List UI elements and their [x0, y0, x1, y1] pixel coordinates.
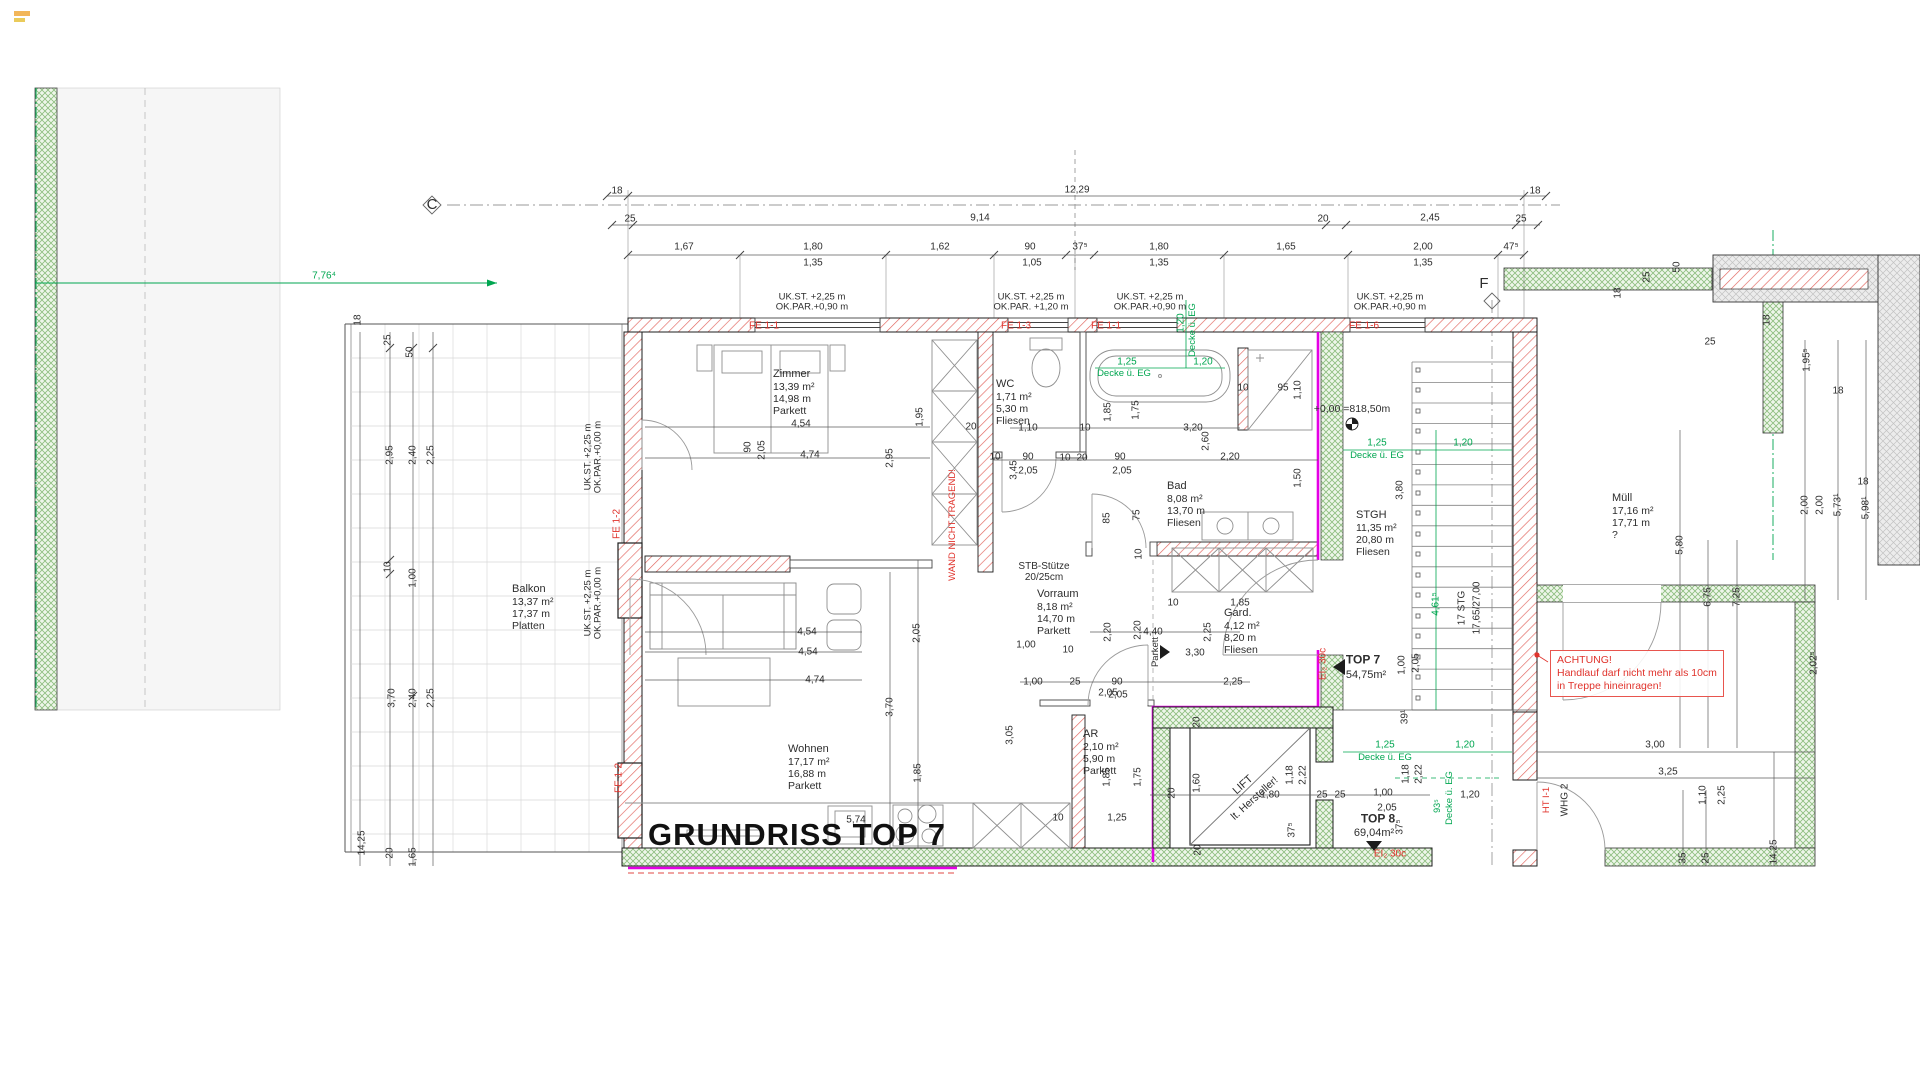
plan-drawing — [0, 0, 1920, 1080]
window-fe1-3 — [1008, 318, 1068, 332]
achtung-line: ACHTUNG! — [1557, 654, 1717, 667]
window-fe1-6 — [1350, 318, 1425, 332]
door-wc — [1002, 458, 1056, 512]
door-entry-top7 — [1223, 560, 1318, 655]
existing-building-left — [35, 88, 280, 710]
achtung-line: Handlauf darf nicht mehr als 10cm — [1557, 667, 1717, 680]
achtung-note: ACHTUNG! Handlauf darf nicht mehr als 10… — [1550, 650, 1724, 697]
shower — [1248, 350, 1312, 430]
door-ar — [1088, 645, 1148, 705]
sofa — [650, 583, 796, 649]
achtung-line: in Treppe hineinragen! — [1557, 680, 1717, 693]
chairs — [827, 584, 861, 650]
door-zimmer-balcony — [642, 420, 692, 470]
wardrobe-zimmer — [932, 340, 977, 545]
party-wall — [1321, 268, 1815, 866]
wall-nicht-tragend — [978, 332, 993, 572]
window-fe1-1-b — [1097, 318, 1177, 332]
bathtub — [1090, 350, 1230, 402]
door-bad — [1092, 494, 1146, 548]
window-fe1-1-a — [755, 318, 880, 332]
toilet — [1030, 338, 1062, 387]
door-ht — [1537, 782, 1605, 850]
window-fe1-2-b — [618, 763, 642, 838]
handrail-posts — [1416, 368, 1420, 700]
logo — [14, 11, 32, 25]
balcony — [345, 324, 628, 852]
lift — [1153, 707, 1333, 848]
stairs — [1343, 362, 1537, 710]
floorplan-sheet: 1812,2918259,14202,45251,671,801,629037⁵… — [0, 0, 1920, 1080]
vanity-bad — [1202, 512, 1293, 540]
bed — [697, 345, 845, 453]
level-marker — [1346, 418, 1358, 430]
page-title: GRUNDRISS TOP 7 — [648, 817, 946, 853]
neighbour-building — [1713, 255, 1920, 565]
floor-transition-arrow — [1160, 645, 1170, 659]
coffee-table — [678, 658, 770, 706]
